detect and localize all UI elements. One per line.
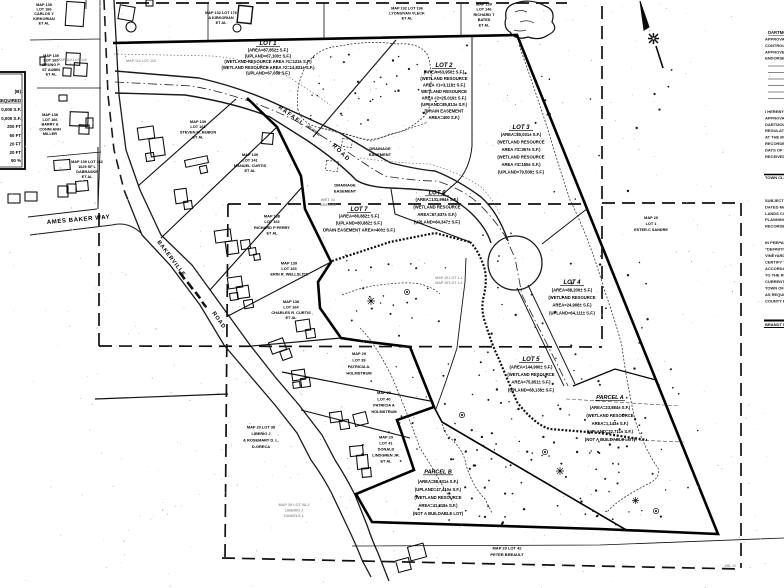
- svg-text:AREA #2=25,019± S.F.): AREA #2=25,019± S.F.): [422, 96, 467, 101]
- svg-text:DRAINAGE: DRAINAGE: [369, 146, 391, 151]
- svg-text:(AREA=87,852± S.F.): (AREA=87,852± S.F.): [248, 48, 289, 53]
- svg-text:(UPLAND=64,111± S.F.): (UPLAND=64,111± S.F.): [549, 310, 595, 315]
- svg-text:MAP 138: MAP 138: [283, 299, 300, 304]
- svg-text:LIBERIO J: LIBERIO J: [285, 509, 304, 513]
- svg-text:CERTIFY THAT IT C: CERTIFY THAT IT C: [765, 260, 784, 265]
- svg-text:LYONS/VAN VLECK: LYONS/VAN VLECK: [389, 12, 425, 16]
- svg-text:EASEMENT: EASEMENT: [369, 152, 392, 157]
- svg-text:AREA #4=155± S.F.): AREA #4=155± S.F.): [501, 162, 541, 167]
- svg-text:ERIN R. WELLSLITZ: ERIN R. WELLSLITZ: [270, 272, 308, 277]
- svg-text:ACCORDANCE WITH: ACCORDANCE WITH: [765, 266, 784, 271]
- svg-text:AT THE MEETING: AT THE MEETING: [765, 135, 784, 140]
- svg-text:(AREA=80,882± S.F.): (AREA=80,882± S.F.): [339, 214, 380, 219]
- svg-text:DARTMOUTH PLANNING: DARTMOUTH PLANNING: [768, 30, 784, 35]
- svg-text:MAP 112 LOT 116: MAP 112 LOT 116: [126, 59, 156, 63]
- svg-text:200 FT: 200 FT: [7, 124, 21, 129]
- svg-text:PATRICIA A.: PATRICIA A.: [348, 364, 370, 369]
- svg-text:I HEREBY CERTIFY: I HEREBY CERTIFY: [765, 109, 784, 114]
- svg-text:MAP 132 LOT 176: MAP 132 LOT 176: [205, 11, 237, 15]
- svg-text:ET AL: ET AL: [402, 17, 414, 21]
- svg-text:AREA #1=3,118± S.F.): AREA #1=3,118± S.F.): [423, 83, 466, 88]
- svg-text:CHARLES R. CURTIS: CHARLES R. CURTIS: [271, 310, 311, 315]
- svg-text:(WETLAND RESOURCE: (WETLAND RESOURCE: [586, 413, 633, 418]
- svg-text:(WETLAND RESOURCE: (WETLAND RESOURCE: [414, 495, 461, 500]
- svg-text:1629 SF L: 1629 SF L: [78, 165, 96, 169]
- svg-text:0,000 S.F.: 0,000 S.F.: [1, 107, 21, 112]
- svg-text:(B): (B): [15, 89, 22, 94]
- svg-text:REGULATIONS OF T: REGULATIONS OF T: [765, 128, 784, 133]
- svg-text:BRUNO P: BRUNO P: [42, 63, 60, 67]
- svg-text:(AREA=63,950± S.F.): (AREA=63,950± S.F.): [424, 70, 465, 75]
- svg-text:LINDGREN JR.: LINDGREN JR.: [372, 453, 399, 458]
- svg-text:(AREA=88,431± S.F.): (AREA=88,431± S.F.): [418, 479, 459, 484]
- svg-text:EASEMENT: EASEMENT: [334, 189, 357, 194]
- svg-text:ENDORSEMENT OF TH: ENDORSEMENT OF TH: [765, 56, 784, 61]
- svg-text:DAYS OF SUCH AP: DAYS OF SUCH AP: [765, 147, 784, 152]
- svg-text:BRANDT POINT: BRANDT POINT: [765, 322, 784, 327]
- svg-text:COUNTY REGISTRY: COUNTY REGISTRY: [765, 299, 784, 304]
- svg-text:BATES: BATES: [478, 18, 491, 22]
- svg-text:LOT 141: LOT 141: [242, 157, 258, 162]
- svg-text:LOT 146: LOT 146: [477, 8, 492, 12]
- svg-text:DABRASKE: DABRASKE: [76, 170, 98, 174]
- svg-text:RICHARD T: RICHARD T: [474, 13, 496, 17]
- svg-text:(AREA=80,031± S.F.): (AREA=80,031± S.F.): [501, 132, 542, 137]
- svg-text:MAP 138: MAP 138: [42, 113, 58, 117]
- svg-text:CONNI ANN: CONNI ANN: [39, 127, 61, 131]
- svg-text:ST AUBIN: ST AUBIN: [42, 68, 60, 72]
- svg-text:MAP 29: MAP 29: [352, 351, 367, 356]
- svg-text:APPROVAL UNDER THE: APPROVAL UNDER THE: [765, 37, 784, 42]
- svg-text:DRAIN EASEMENT AREA=400± S.F.): DRAIN EASEMENT AREA=400± S.F.): [323, 228, 396, 233]
- svg-text:MAP 139: MAP 139: [242, 152, 259, 157]
- svg-text:20 FT: 20 FT: [10, 142, 22, 147]
- svg-text:(UPLAND=47,410± S.F.): (UPLAND=47,410± S.F.): [415, 487, 462, 492]
- svg-text:APPROVAL OF THIS: APPROVAL OF THIS: [765, 115, 784, 120]
- svg-text:AREA=67,637± S.F.): AREA=67,637± S.F.): [417, 212, 457, 217]
- svg-text:CONTROL LAW IS REQ: CONTROL LAW IS REQ: [765, 43, 784, 48]
- svg-text:RECORDED IN TH: RECORDED IN TH: [765, 141, 784, 146]
- svg-text:-HB- 12: -HB- 12: [724, 564, 736, 568]
- svg-text:ET AL: ET AL: [82, 175, 94, 179]
- svg-text:(WETLAND RESOURCE: (WETLAND RESOURCE: [507, 372, 554, 377]
- svg-text:"DEFINITIVE PLAN": "DEFINITIVE PLAN": [765, 247, 784, 252]
- svg-text:MILLER: MILLER: [43, 132, 57, 136]
- svg-text:PLANNING BOA: PLANNING BOA: [765, 217, 784, 222]
- svg-text:TOWN CLERK: TOWN CLERK: [765, 175, 784, 180]
- svg-text:(NOT A BUILDABLE LOT): (NOT A BUILDABLE LOT): [413, 511, 464, 516]
- svg-text:MAP 29 LOT 38: MAP 29 LOT 38: [247, 425, 276, 430]
- svg-text:MAP 139: MAP 139: [281, 261, 298, 266]
- svg-text:MAP 29: MAP 29: [379, 435, 394, 440]
- svg-text:MAP 29 LOT 42: MAP 29 LOT 42: [492, 546, 522, 551]
- svg-text:(UPLAND=80,882± S.F.): (UPLAND=80,882± S.F.): [336, 221, 383, 226]
- svg-text:KIRKORIAN: KIRKORIAN: [33, 17, 55, 21]
- svg-text:ET AL: ET AL: [244, 168, 256, 173]
- svg-text:ET AL: ET AL: [285, 315, 297, 320]
- svg-text:CURRENT AS OF TH: CURRENT AS OF TH: [765, 279, 784, 284]
- svg-text:TO THE RULES AND: TO THE RULES AND: [765, 273, 784, 278]
- svg-text:(AREA=131,994± S.F.): (AREA=131,994± S.F.): [416, 197, 460, 202]
- svg-text:DATED MARCH: DATED MARCH: [765, 204, 784, 209]
- svg-text:MAP 139: MAP 139: [476, 3, 492, 7]
- svg-text:BARRY &: BARRY &: [41, 123, 58, 127]
- svg-text:ET AL: ET AL: [266, 231, 278, 236]
- svg-text:ET AL: ET AL: [39, 21, 51, 25]
- svg-text:LOT 163: LOT 163: [281, 266, 297, 271]
- svg-text:AREA #3=367± S.F.): AREA #3=367± S.F.): [501, 147, 541, 152]
- svg-text:(UPLAND=68,138± S.F.): (UPLAND=68,138± S.F.): [508, 387, 555, 392]
- svg-text:(UPLAND=67,088 S.F.): (UPLAND=67,088 S.F.): [246, 71, 290, 76]
- svg-text:PETER BREAULT: PETER BREAULT: [490, 552, 524, 557]
- svg-text:MAP 112 LOT 116: MAP 112 LOT 116: [57, 58, 87, 62]
- svg-text:(NOT A BUILDABLE LOT): (NOT A BUILDABLE LOT): [585, 437, 636, 442]
- svg-text:PATRICIA A: PATRICIA A: [373, 403, 395, 408]
- svg-text:MAP 29: MAP 29: [377, 390, 392, 395]
- svg-text:MAP 139 LOT 162: MAP 139 LOT 162: [71, 160, 103, 164]
- svg-text:ET AL: ET AL: [479, 23, 491, 27]
- svg-text:[DRAIN EASEMENT: [DRAIN EASEMENT: [424, 109, 464, 114]
- svg-text:(WETLAND RESOURCE AREA #1=122±: (WETLAND RESOURCE AREA #1=122± S.F.): [224, 59, 312, 64]
- svg-text:DARTMOUTH PLANN: DARTMOUTH PLANN: [765, 122, 784, 127]
- svg-text:AREA=24,908± S.F.): AREA=24,908± S.F.): [552, 303, 592, 308]
- svg-text:(AREA=23,884± S.F.): (AREA=23,884± S.F.): [590, 405, 631, 410]
- svg-text:MAP 139: MAP 139: [36, 3, 52, 7]
- svg-text:(UPLAND=22,711± S.F.): (UPLAND=22,711± S.F.): [587, 429, 634, 434]
- svg-text:AREA=400 S.F.): AREA=400 S.F.): [428, 115, 460, 120]
- svg-text:LOT 1: LOT 1: [646, 222, 657, 226]
- svg-text:(WETLAND RESOURCE AREA #2=14,8: (WETLAND RESOURCE AREA #2=14,831± S.F.): [221, 65, 315, 70]
- svg-text:(UPLAND=85,813± S.F.): (UPLAND=85,813± S.F.): [421, 102, 468, 107]
- svg-text:LOT 162: LOT 162: [264, 219, 280, 224]
- svg-text:DANIELS L: DANIELS L: [284, 514, 305, 518]
- svg-text:(AREA=88,200± S.F.): (AREA=88,200± S.F.): [552, 288, 593, 293]
- svg-text:(UPLAND=67,100± S.F.): (UPLAND=67,100± S.F.): [245, 53, 292, 58]
- svg-text:HOLMSTRUM: HOLMSTRUM: [371, 409, 396, 414]
- svg-text:MANUEL CURTIS: MANUEL CURTIS: [234, 163, 267, 168]
- svg-text:RECORDED HER: RECORDED HER: [765, 224, 784, 229]
- svg-text:60 FT: 60 FT: [10, 133, 22, 138]
- svg-text:LOT 164: LOT 164: [283, 304, 299, 309]
- svg-text:DONALD: DONALD: [378, 447, 395, 452]
- svg-text:(AREA=144,990± S.F.): (AREA=144,990± S.F.): [510, 365, 554, 370]
- svg-text:(WETLAND RESOURCE: (WETLAND RESOURCE: [420, 76, 467, 81]
- svg-text:AREA=41,018± S.F.): AREA=41,018± S.F.): [418, 503, 458, 508]
- svg-text:DRAINAGE: DRAINAGE: [334, 183, 356, 188]
- svg-text:LOT 39: LOT 39: [352, 358, 366, 363]
- svg-text:(WETLAND RESOURCE: (WETLAND RESOURCE: [413, 205, 460, 210]
- svg-text:VINEYARD SURVEYI: VINEYARD SURVEYI: [765, 253, 784, 258]
- svg-text:20 FT: 20 FT: [10, 150, 22, 155]
- svg-text:IN PREPARING THIS: IN PREPARING THIS: [765, 240, 784, 245]
- svg-text:ET AL: ET AL: [192, 135, 204, 140]
- svg-text:TOWN OF DARTMOU: TOWN OF DARTMOU: [765, 286, 784, 291]
- svg-text:D-GRECA: D-GRECA: [252, 444, 270, 449]
- svg-text:(WETLAND RESOURCE: (WETLAND RESOURCE: [497, 140, 544, 145]
- svg-text:(WETLAND RESOURCE: (WETLAND RESOURCE: [497, 155, 544, 160]
- svg-text:& ROSEMARY D. L.: & ROSEMARY D. L.: [243, 438, 279, 443]
- svg-text:0,000 S.F.: 0,000 S.F.: [1, 116, 21, 121]
- svg-text:LANDS COURT: LANDS COURT: [765, 211, 784, 216]
- svg-text:AREA=1,143± S.F.): AREA=1,143± S.F.): [592, 421, 629, 426]
- svg-text:(UPLAND=64,347± S.F.): (UPLAND=64,347± S.F.): [414, 220, 461, 225]
- svg-text:RICHARD P PERRY: RICHARD P PERRY: [254, 225, 290, 230]
- svg-text:ET AL: ET AL: [380, 459, 392, 464]
- svg-text:ET AL: ET AL: [216, 21, 228, 25]
- svg-text:SUBJECT TO THE: SUBJECT TO THE: [765, 198, 784, 203]
- svg-text:MAP 29: MAP 29: [644, 216, 658, 220]
- svg-text:AREA #2: AREA #2: [320, 202, 338, 207]
- svg-text:LIBERIO J: LIBERIO J: [251, 431, 270, 436]
- svg-text:MAP 29 LOT 1-1: MAP 29 LOT 1-1: [435, 276, 462, 280]
- svg-text:LOT 166: LOT 166: [37, 8, 52, 12]
- svg-text:LOT 41: LOT 41: [379, 441, 393, 446]
- svg-text:(WETLAND RESOURCE: (WETLAND RESOURCE: [548, 295, 595, 300]
- svg-text:LOT 40: LOT 40: [377, 396, 390, 401]
- svg-text:ESTER-C SANDRE: ESTER-C SANDRE: [634, 228, 668, 232]
- svg-text:MAP 132 LOT 196: MAP 132 LOT 196: [391, 7, 423, 11]
- svg-text:HOLMSTRUM: HOLMSTRUM: [346, 371, 371, 376]
- svg-text:REQUIRED: REQUIRED: [0, 98, 21, 103]
- svg-text:50 %: 50 %: [11, 158, 21, 163]
- svg-text:MAP 138: MAP 138: [264, 214, 281, 219]
- svg-text:CARLOS Y: CARLOS Y: [34, 12, 54, 16]
- svg-text:AS REQUIRED BY: AS REQUIRED BY: [765, 292, 784, 297]
- svg-text:AREA=75,851± S.F.): AREA=75,851± S.F.): [511, 380, 551, 385]
- svg-text:ET AL: ET AL: [46, 72, 58, 76]
- svg-text:LOT 166: LOT 166: [43, 118, 58, 122]
- svg-text:RECEIVED AND REC: RECEIVED AND REC: [765, 154, 784, 159]
- svg-text:MAP 29 LOT 38-2: MAP 29 LOT 38-2: [279, 503, 310, 507]
- svg-text:WETLAND RESOURCE: WETLAND RESOURCE: [421, 89, 467, 94]
- svg-text:A KIRKORIAN: A KIRKORIAN: [208, 16, 233, 20]
